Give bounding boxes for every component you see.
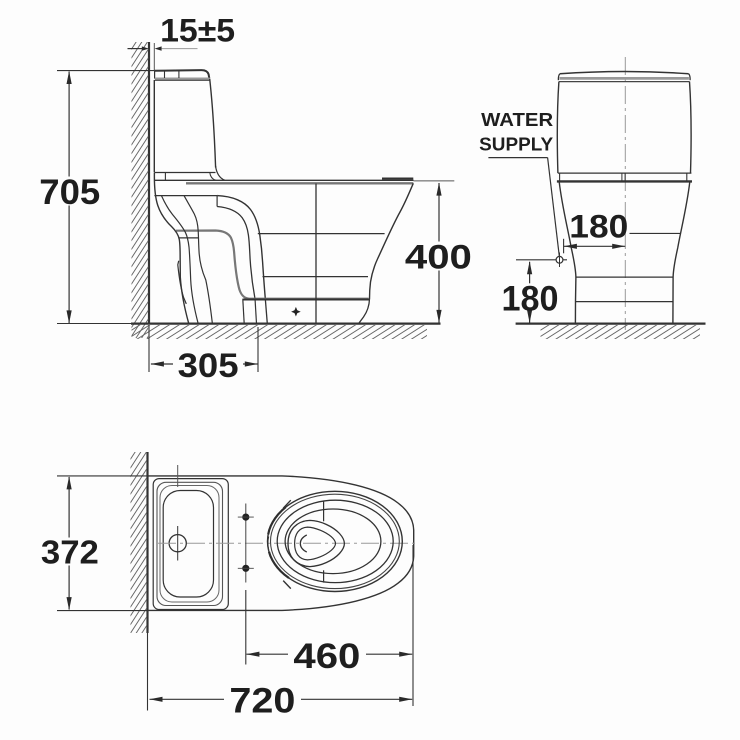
- svg-text:180: 180: [569, 208, 628, 244]
- svg-text:460: 460: [293, 637, 360, 676]
- svg-text:305: 305: [178, 347, 239, 385]
- svg-text:705: 705: [39, 173, 100, 212]
- svg-text:720: 720: [229, 682, 295, 721]
- svg-text:180: 180: [502, 279, 559, 318]
- svg-text:SUPPLY: SUPPLY: [479, 134, 554, 155]
- svg-text:372: 372: [41, 534, 99, 571]
- svg-text:WATER: WATER: [481, 109, 553, 130]
- svg-text:400: 400: [405, 239, 472, 277]
- svg-text:15±5: 15±5: [160, 13, 235, 49]
